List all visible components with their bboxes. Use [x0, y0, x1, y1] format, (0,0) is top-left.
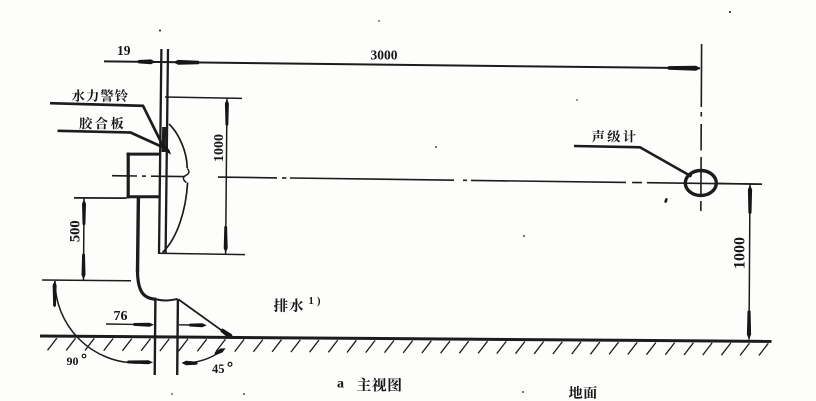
svg-text:76: 76: [114, 309, 128, 324]
svg-text:500: 500: [68, 220, 84, 242]
svg-text:3000: 3000: [371, 48, 398, 63]
svg-text:1000: 1000: [732, 237, 749, 269]
svg-text:1000: 1000: [212, 134, 227, 162]
svg-text:90: 90: [67, 354, 79, 368]
svg-text:a: a: [337, 377, 344, 392]
svg-text:1): 1): [309, 296, 324, 307]
svg-text:45: 45: [212, 362, 225, 376]
svg-text:19: 19: [117, 43, 131, 58]
